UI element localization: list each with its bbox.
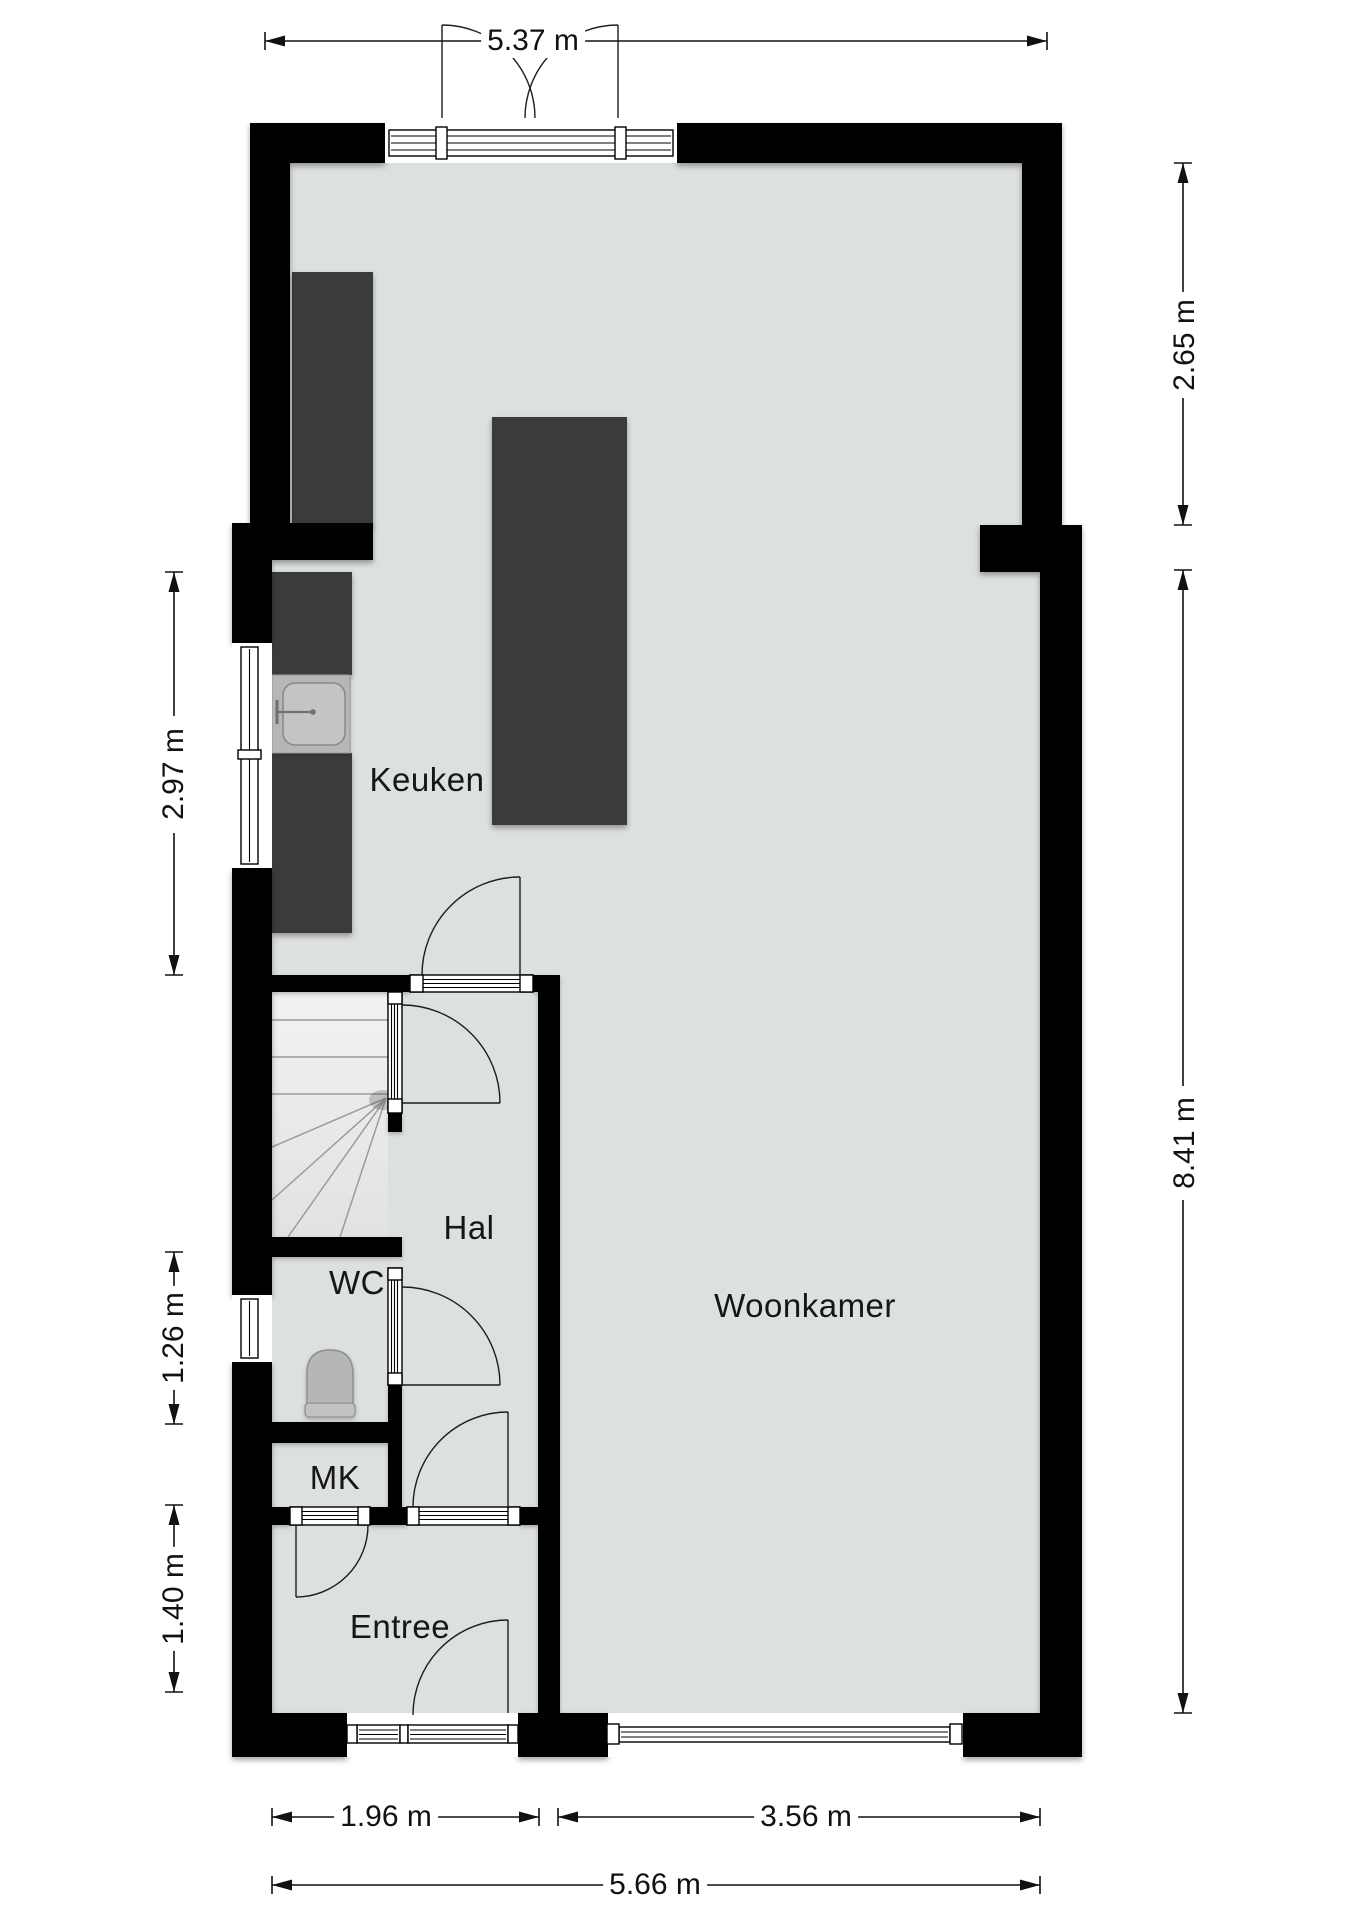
wc-door <box>388 1268 402 1385</box>
dimension-label-bottom-566: 5.66 m <box>603 1868 707 1902</box>
front-door <box>347 1725 518 1743</box>
kitchen-island <box>492 417 627 825</box>
room-label-mk: MK <box>310 1459 361 1497</box>
floorplan-canvas <box>0 0 1358 1920</box>
dimension-label-bottom-356: 3.56 m <box>754 1800 858 1834</box>
mk-door <box>290 1507 370 1525</box>
room-label-keuken: Keuken <box>370 761 485 799</box>
garden-door-window <box>389 127 673 159</box>
toilet-icon <box>305 1350 355 1417</box>
kitchen-sink-icon <box>272 675 350 753</box>
room-label-woonkamer: Woonkamer <box>714 1287 896 1325</box>
floorplan-page: Keuken Hal WC MK Entree Woonkamer 5.37 m… <box>0 0 1358 1920</box>
dimension-label-bottom-196: 1.96 m <box>334 1800 438 1834</box>
dimension-label-right-841: 8.41 m <box>1168 1091 1202 1195</box>
dimension-label-top-537: 5.37 m <box>481 24 585 58</box>
floor-areas <box>272 163 1040 1713</box>
dimension-label-left-297: 2.97 m <box>157 722 191 826</box>
room-label-wc: WC <box>329 1264 385 1302</box>
stairs-door <box>388 992 402 1113</box>
kitchen-window <box>238 647 261 864</box>
dimension-label-left-140: 1.40 m <box>157 1547 191 1651</box>
wc-window <box>241 1299 258 1358</box>
room-label-entree: Entree <box>350 1608 450 1646</box>
dimension-label-right-265: 2.65 m <box>1168 293 1202 397</box>
dim-top <box>265 32 1047 50</box>
room-label-hal: Hal <box>443 1209 494 1247</box>
stairs-icon <box>272 992 397 1237</box>
living-room-window <box>607 1724 962 1744</box>
entree-hall-door <box>407 1507 520 1525</box>
dimension-label-left-126: 1.26 m <box>157 1286 191 1390</box>
kitchen-door <box>410 975 533 992</box>
